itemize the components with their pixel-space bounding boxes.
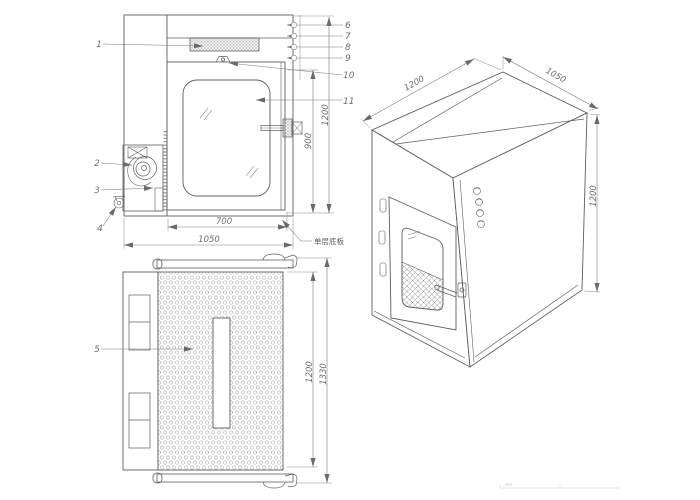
bottom-flange <box>153 473 297 488</box>
iso-dim-height: 1200 <box>589 185 599 207</box>
dim-overall-height-back: 1330 <box>319 363 329 385</box>
glass-reflection-marks <box>200 108 258 178</box>
part-label-7: 7 <box>345 32 351 42</box>
filter-strip <box>155 188 163 211</box>
panel-slot <box>213 318 230 428</box>
dim-overall-width: 1050 <box>198 235 220 245</box>
part-label-4: 4 <box>97 224 103 234</box>
side-box <box>123 272 158 470</box>
hinge-plate-lower <box>129 393 150 448</box>
technical-drawing-page: 900 1200 700 1050 1 2 3 4 6 7 <box>0 0 700 500</box>
dim-door-height: 900 <box>304 133 314 149</box>
front-leaders <box>101 22 343 226</box>
iso-dim-width: 1050 <box>544 66 568 85</box>
part-label-6: 6 <box>345 21 351 31</box>
dim-overall-height: 1200 <box>321 104 331 126</box>
note-leader <box>282 220 312 241</box>
front-view: 900 1200 700 1050 1 2 3 4 6 7 <box>94 15 355 249</box>
iso-dim-depth: 1200 <box>403 74 427 93</box>
part-label-5: 5 <box>94 345 100 355</box>
pass-box-drawing: 900 1200 700 1050 1 2 3 4 6 7 <box>0 0 700 500</box>
part-label-1: 1 <box>96 40 102 50</box>
hinge-plate-upper <box>129 295 150 350</box>
dim-body-height: 1200 <box>305 361 315 383</box>
blower-fan <box>128 157 157 187</box>
part-label-10: 10 <box>343 71 355 81</box>
part-label-3: 3 <box>94 186 100 196</box>
faint-border-artifact <box>500 483 621 488</box>
vent-grille <box>190 38 259 51</box>
part-label-11: 11 <box>343 97 354 107</box>
part-label-9: 9 <box>345 54 351 64</box>
top-flange <box>153 254 297 269</box>
back-view: 1200 1330 5 <box>94 254 332 488</box>
door-handle <box>261 119 302 137</box>
part-label-8: 8 <box>345 43 351 53</box>
iso-view: 1200 1050 1200 <box>361 56 600 367</box>
door-window <box>183 80 270 196</box>
dim-door-width: 700 <box>216 217 232 227</box>
part-label-2: 2 <box>94 159 100 169</box>
door-latch <box>216 57 230 63</box>
note-bottom-plate: 单层底板 <box>314 236 344 246</box>
